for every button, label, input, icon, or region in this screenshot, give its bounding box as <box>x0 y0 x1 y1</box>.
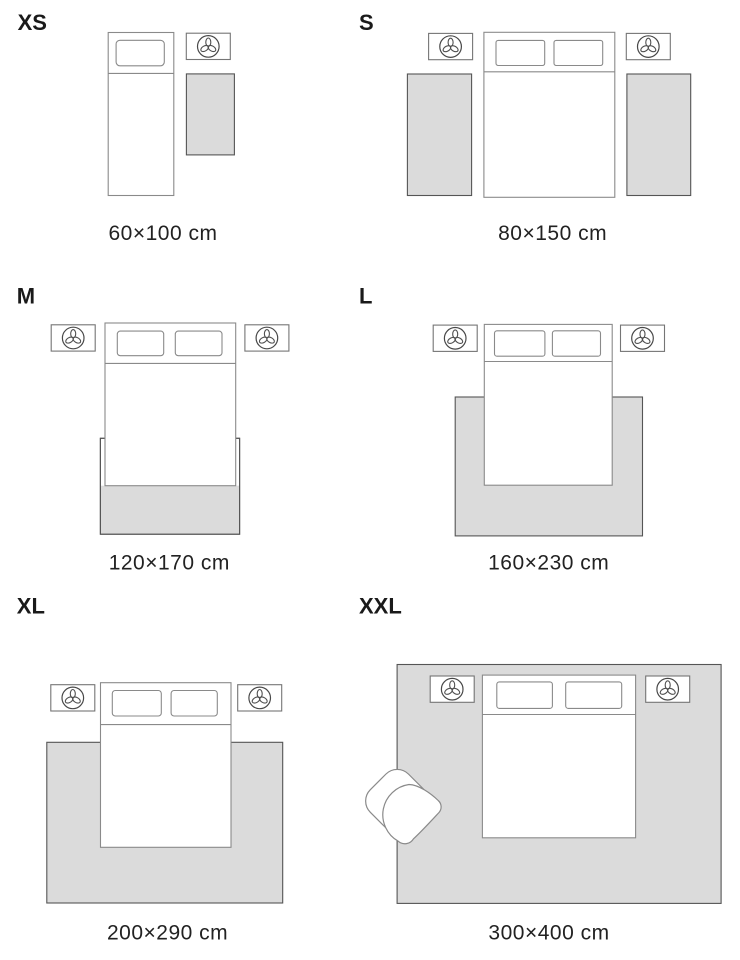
svg-text:80×150 cm: 80×150 cm <box>498 222 607 245</box>
svg-text:S: S <box>359 10 374 35</box>
svg-text:60×100 cm: 60×100 cm <box>109 222 218 245</box>
svg-text:XL: XL <box>17 593 45 618</box>
svg-text:L: L <box>359 283 372 308</box>
svg-text:200×290 cm: 200×290 cm <box>107 922 228 945</box>
svg-text:160×230 cm: 160×230 cm <box>488 551 609 574</box>
svg-text:300×400 cm: 300×400 cm <box>488 922 609 945</box>
svg-text:XS: XS <box>18 10 47 35</box>
svg-text:M: M <box>17 283 35 308</box>
svg-text:120×170 cm: 120×170 cm <box>109 551 230 574</box>
svg-text:XXL: XXL <box>359 593 402 618</box>
